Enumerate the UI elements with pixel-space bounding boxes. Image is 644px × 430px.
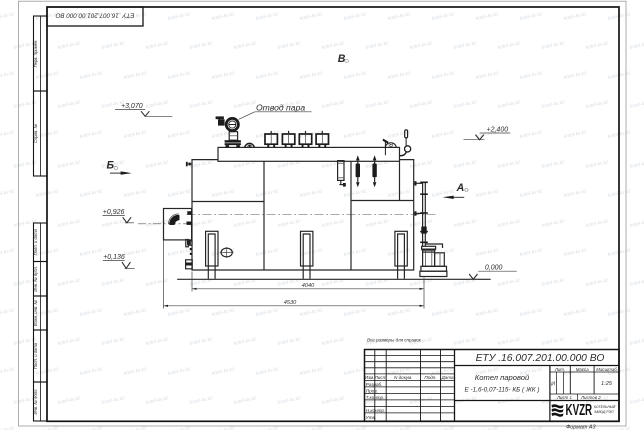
svg-text:1:25: 1:25 — [601, 381, 613, 387]
svg-text:Формат А3: Формат А3 — [566, 425, 596, 430]
svg-text:+0,926: +0,926 — [103, 209, 125, 216]
svg-text:ЗАВОД РЭП: ЗАВОД РЭП — [594, 410, 614, 414]
svg-text:ЕТУ .16.007.201.00.000 ВО: ЕТУ .16.007.201.00.000 ВО — [56, 12, 135, 19]
svg-text:Все размеры для справок: Все размеры для справок — [367, 337, 422, 342]
svg-text:КОТЕЛЬНЫЙ: КОТЕЛЬНЫЙ — [594, 405, 616, 409]
svg-text:Взам. инв. №: Взам. инв. № — [33, 300, 38, 326]
svg-text:4530: 4530 — [284, 300, 297, 306]
svg-text:Б: Б — [107, 160, 115, 172]
svg-text:N докум.: N докум. — [394, 375, 413, 380]
svg-text:Справ. №: Справ. № — [33, 124, 38, 143]
svg-text:И: И — [551, 382, 555, 388]
svg-text:В: В — [338, 53, 346, 65]
svg-text:+2,400: +2,400 — [487, 126, 509, 133]
svg-text:Подп. и дата: Подп. и дата — [33, 342, 38, 369]
svg-text:Масса: Масса — [576, 367, 590, 372]
svg-text:Масштаб: Масштаб — [596, 367, 617, 372]
svg-text:Котел паровой: Котел паровой — [475, 373, 530, 382]
svg-text:Подп.: Подп. — [424, 375, 436, 380]
svg-text:Лист 1: Лист 1 — [556, 395, 573, 400]
svg-text:+0,136: +0,136 — [103, 254, 125, 261]
svg-text:0,000: 0,000 — [485, 264, 503, 271]
svg-text:Лист: Лист — [374, 375, 387, 380]
svg-text:Изм.: Изм. — [365, 375, 375, 380]
svg-text:Е -1,6-0,07-115- КБ ( ЖК ): Е -1,6-0,07-115- КБ ( ЖК ) — [465, 386, 540, 393]
svg-text:Инв. № дубл.: Инв. № дубл. — [33, 266, 38, 292]
svg-text:Подп. и дата: Подп. и дата — [33, 228, 38, 255]
svg-text:+3,070: +3,070 — [121, 103, 143, 110]
svg-text:4040: 4040 — [302, 283, 315, 289]
svg-text:Перв. примен.: Перв. примен. — [33, 40, 38, 68]
svg-text:KVZR: KVZR — [566, 401, 593, 419]
svg-text:А: А — [456, 182, 465, 194]
svg-text:Утв.: Утв. — [366, 415, 376, 420]
svg-text:Отвод пара: Отвод пара — [256, 102, 305, 112]
svg-text:Листов 2: Листов 2 — [580, 395, 601, 400]
svg-text:Инв. № подл.: Инв. № подл. — [33, 389, 38, 415]
svg-text:Разраб.: Разраб. — [366, 382, 383, 387]
svg-text:ЕТУ .16.007.201.00.000 ВО: ЕТУ .16.007.201.00.000 ВО — [476, 353, 605, 364]
svg-text:Пров.: Пров. — [366, 388, 378, 393]
svg-text:Лит.: Лит. — [554, 367, 565, 372]
svg-text:Дата: Дата — [440, 375, 454, 380]
svg-text:Н.контр.: Н.контр. — [366, 408, 385, 413]
svg-text:Т.контр.: Т.контр. — [366, 395, 385, 400]
